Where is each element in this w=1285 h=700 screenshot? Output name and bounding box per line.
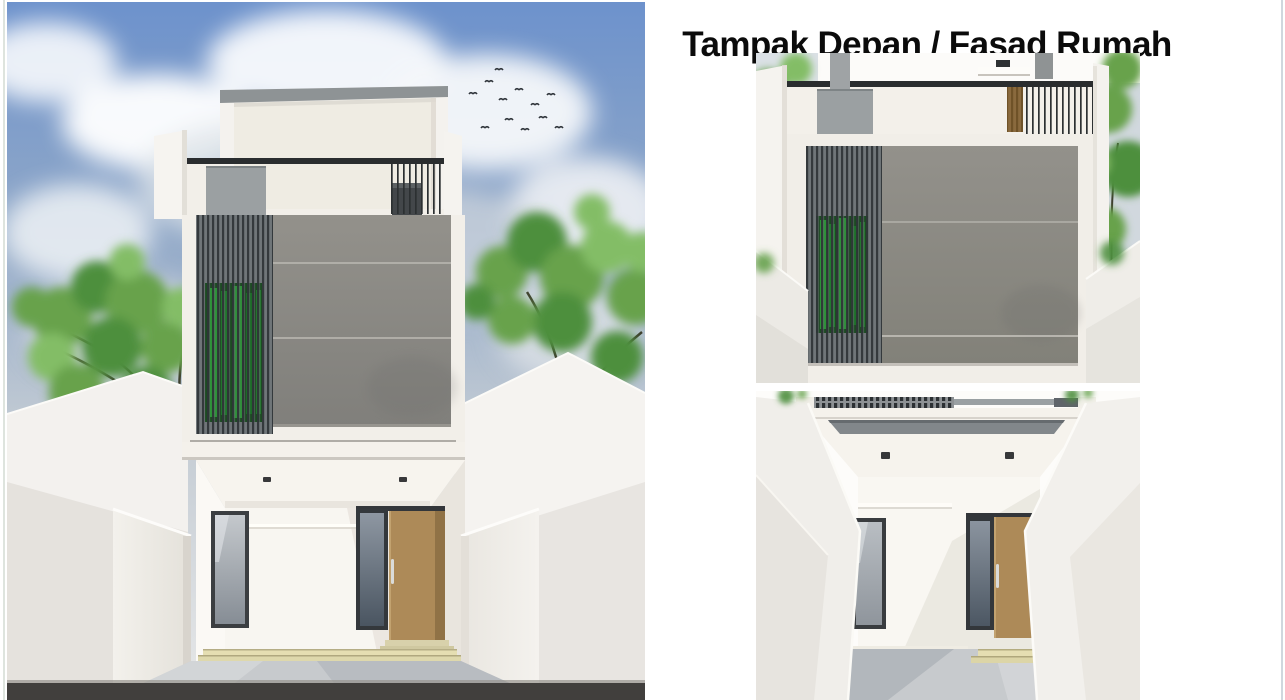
louver-screen (806, 146, 882, 363)
facade-gray-panel (273, 215, 457, 427)
entry-door (389, 511, 445, 640)
door-handle (996, 564, 999, 588)
terrace-railing-bar (187, 158, 445, 164)
road (7, 680, 645, 700)
baseboard (844, 646, 968, 649)
slide-right-border (1281, 0, 1283, 700)
shelf-box (996, 60, 1010, 68)
wood-louver-panel (1007, 83, 1023, 132)
louver-screen (196, 215, 273, 434)
baluster-railing (1023, 83, 1093, 134)
entry-recess (196, 460, 465, 662)
render-upper-floors-detail (756, 53, 1140, 383)
baluster-railing (388, 164, 444, 214)
entry-soffit (196, 460, 465, 508)
canopy (182, 440, 465, 460)
downlight (399, 477, 407, 482)
door-handle (391, 559, 394, 584)
presentation-slide: Tampak Depan / Fasad Rumah (0, 0, 1285, 700)
parapet-pillar-right (444, 131, 462, 219)
parapet-pillar-left (154, 130, 187, 219)
downlight (263, 477, 271, 482)
render-full-facade (7, 2, 645, 700)
terrace-gray-panel (206, 166, 266, 219)
entry-window (211, 511, 249, 628)
downlight (1005, 452, 1014, 459)
entry-sidelight (966, 517, 994, 630)
entry-sidelight (356, 509, 388, 630)
slide-left-border (3, 0, 5, 700)
canopy-fascia (796, 408, 1086, 419)
render-entrance-detail (756, 391, 1140, 700)
terrace-gray-panel (817, 89, 873, 134)
downlight (881, 452, 890, 459)
